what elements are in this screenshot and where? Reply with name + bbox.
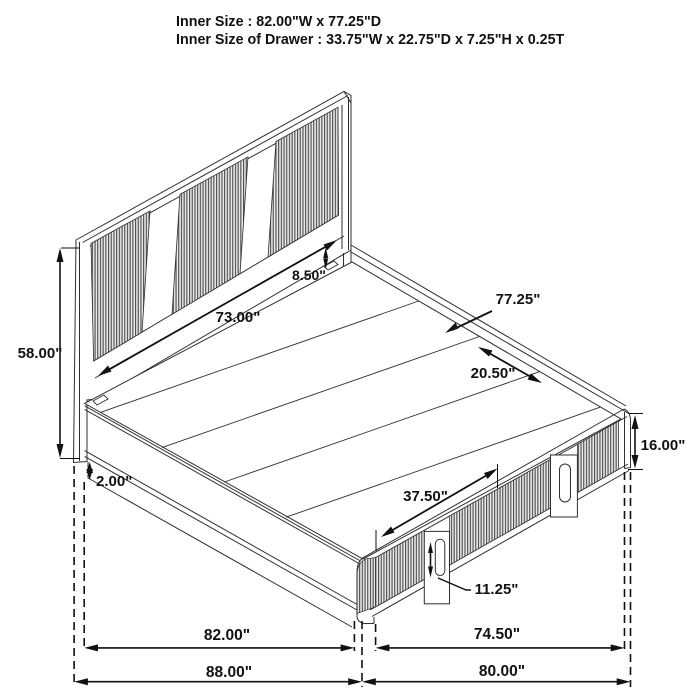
svg-text:2.00": 2.00" (96, 473, 132, 490)
svg-text:80.00": 80.00" (479, 663, 525, 680)
svg-text:58.00": 58.00" (18, 345, 63, 362)
svg-text:74.50": 74.50" (474, 626, 520, 643)
svg-text:37.50": 37.50" (403, 488, 448, 505)
svg-text:8.50": 8.50" (292, 267, 326, 283)
svg-text:Inner Size of Drawer : 33.75"W: Inner Size of Drawer : 33.75"W x 22.75"D… (176, 32, 565, 48)
svg-text:88.00": 88.00" (206, 664, 252, 681)
svg-text:11.25": 11.25" (475, 581, 519, 598)
svg-text:73.00": 73.00" (216, 309, 261, 326)
svg-text:16.00": 16.00" (641, 437, 686, 454)
svg-text:20.50": 20.50" (471, 365, 516, 382)
svg-text:77.25": 77.25" (496, 291, 541, 308)
svg-text:82.00": 82.00" (204, 627, 250, 644)
svg-text:Inner Size : 82.00"W x 77.25"D: Inner Size : 82.00"W x 77.25"D (176, 14, 381, 30)
